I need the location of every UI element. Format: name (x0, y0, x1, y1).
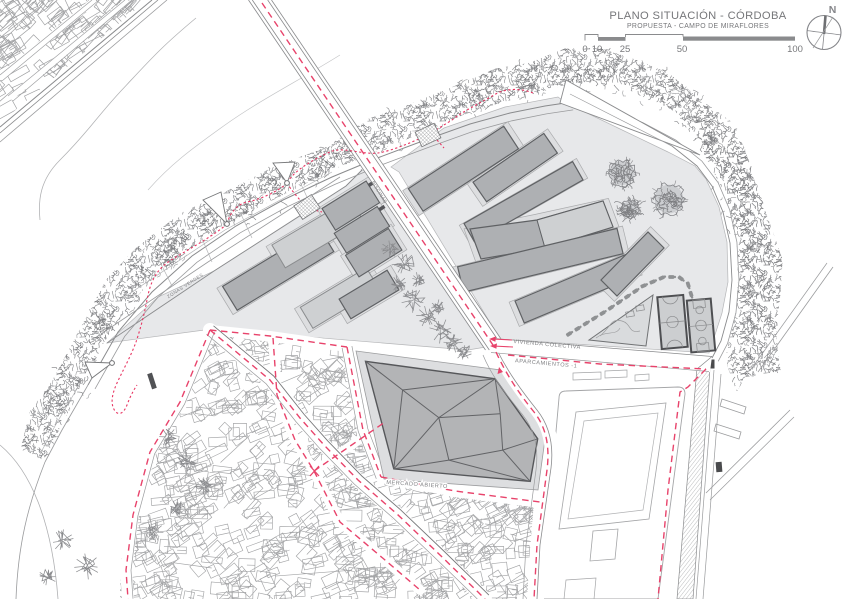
svg-text:0: 0 (582, 44, 587, 55)
svg-text:N: N (829, 4, 837, 16)
svg-text:10: 10 (592, 44, 603, 55)
svg-text:100: 100 (787, 44, 803, 55)
svg-text:25: 25 (620, 44, 631, 55)
svg-text:50: 50 (677, 44, 688, 55)
svg-text:PLANO SITUACIÓN - CÓRDOBA: PLANO SITUACIÓN - CÓRDOBA (609, 9, 786, 22)
svg-text:PROPUESTA - CAMPO DE MIRAFLORE: PROPUESTA - CAMPO DE MIRAFLORES (627, 23, 769, 30)
